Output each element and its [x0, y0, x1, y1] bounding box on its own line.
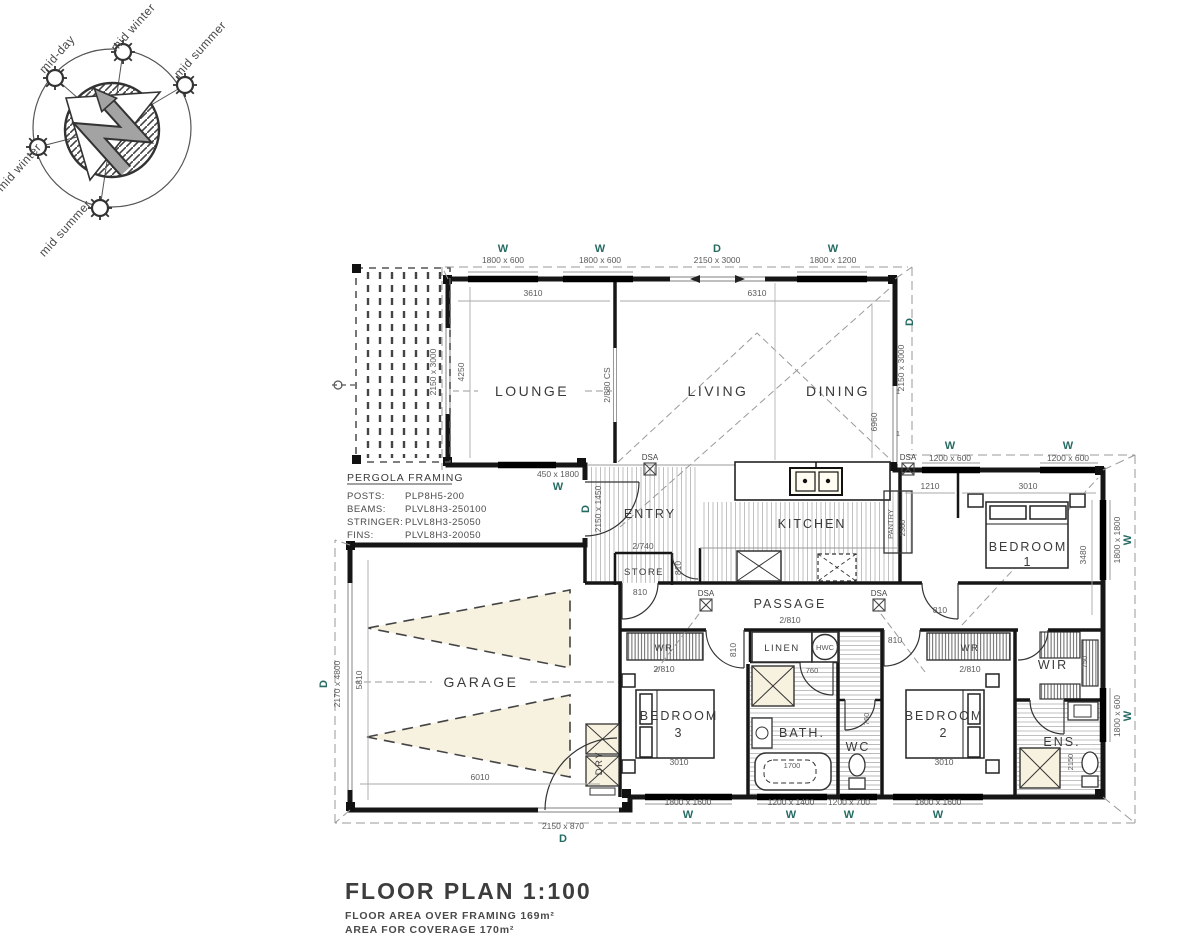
panel-marker: 1 [896, 387, 900, 396]
dim-bed1-depth: 3480 [1078, 545, 1088, 564]
panel-marker: 1 [896, 429, 900, 438]
pergola-note-value: PLVL8H3-25050 [405, 517, 481, 528]
window-tag: W [553, 481, 564, 493]
room-label-dry: DRY [594, 751, 605, 775]
window-size: 1800 x 1200 [810, 255, 857, 265]
dsa-label: DSA [698, 589, 715, 598]
sun-label-midwinter-left: mid winter [0, 140, 44, 194]
window-size: 1800 x 600 [1112, 695, 1122, 737]
dim-tub: 1700 [784, 761, 801, 770]
window-tag: W [595, 243, 606, 255]
room-number-3: 3 [675, 726, 684, 740]
pergola-note-value: PLVL8H3-20050 [405, 530, 481, 541]
drawing-note-1: FLOOR AREA OVER FRAMING 169m² [345, 910, 555, 922]
room-number-2: 2 [940, 726, 949, 740]
room-label-hwc: HWC [816, 643, 834, 652]
north-symbol [65, 82, 160, 180]
room-label-linen: LINEN [764, 643, 799, 654]
dim-bed3-width: 3010 [670, 757, 689, 767]
dim-nook: 1210 [921, 481, 940, 491]
dim-wir: 750 [1080, 656, 1089, 669]
door-size: 2150 x 870 [542, 821, 584, 831]
window-tag: W [498, 243, 509, 255]
door-tag: D [559, 833, 567, 845]
room-label-lounge: LOUNGE [495, 383, 569, 399]
title-block: FLOOR PLAN 1:100 FLOOR AREA OVER FRAMING… [345, 878, 592, 936]
window-size: 1800 x 600 [482, 255, 524, 265]
door-tag: D [713, 243, 721, 255]
dim-bed1-width: 3010 [1019, 481, 1038, 491]
drawing-note-2: AREA FOR COVERAGE 170m² [345, 924, 514, 936]
room-label-entry: ENTRY [624, 507, 676, 521]
room-label-garage: GARAGE [444, 674, 519, 690]
wr-door-size: 2/810 [959, 664, 981, 674]
dim-garage-depth: 5810 [354, 670, 364, 689]
door-size-760: 760 [862, 713, 871, 726]
room-label-bath: BATH. [779, 726, 825, 740]
door-size: 2150 x 3000 [428, 348, 438, 395]
window-tag: W [786, 809, 797, 821]
window-size: 1200 x 600 [1047, 453, 1089, 463]
door-size: 2150 x 1450 [593, 485, 603, 532]
sun-path-diagram: mid-day mid winter mid summer mid winter… [0, 0, 229, 259]
window-size: 1800 x 1600 [915, 797, 962, 807]
room-label-store: STORE [624, 567, 664, 578]
room-label-wc: WC [846, 740, 871, 754]
room-label-wir: WIR [1038, 658, 1068, 672]
room-label-passage: PASSAGE [754, 597, 827, 611]
door-size-810: 810 [673, 561, 683, 575]
window-size: 1200 x 600 [929, 453, 971, 463]
window-tag: W [1063, 440, 1074, 452]
ens-shower [1020, 748, 1060, 788]
dsa-label: DSA [900, 453, 917, 462]
dim-bed2-width: 3010 [935, 757, 954, 767]
window-size: 1200 x 1400 [768, 797, 815, 807]
window-size: 450 x 1800 [537, 469, 579, 479]
window-tag: W [1122, 710, 1134, 721]
floor-plan-drawing: mid-day mid winter mid summer mid winter… [0, 0, 1189, 945]
door-tag: D [580, 505, 592, 513]
room-label-dining: DINING [806, 383, 870, 399]
room-label-kitchen: KITCHEN [778, 517, 847, 531]
cavity-slider-label: 2/880 CS [602, 367, 612, 403]
dim-ens: 2150 [1066, 754, 1075, 771]
door-size-810: 810 [633, 587, 647, 597]
passage-doors-label: 2/810 [779, 615, 801, 625]
pergola-note-label: STRINGER: [347, 517, 403, 528]
pergola-note-value: PLP8H5-200 [405, 491, 464, 502]
sun-label-midsummer-right: mid summer [171, 18, 229, 80]
bath-vanity [752, 718, 772, 748]
dim-pantry-depth: 2360 [898, 520, 907, 537]
pergola-note-title: PERGOLA FRAMING [347, 472, 464, 484]
door-size-760: 760 [806, 666, 819, 675]
room-number-1: 1 [1024, 555, 1033, 569]
room-label-pantry: PANTRY [886, 509, 895, 539]
room-label-bedroom3: BEDROOM [640, 709, 719, 723]
room-label-ens: ENS. [1043, 735, 1080, 749]
window-size: 1200 x 700 [828, 797, 870, 807]
dim-lounge-width: 3610 [524, 288, 543, 298]
pergola-note-value: PLVL8H3-250100 [405, 504, 487, 515]
dim-lounge-depth: 4250 [456, 362, 466, 381]
window-tag: W [1122, 534, 1134, 545]
room-label-living: LIVING [688, 383, 749, 399]
window-tag: W [933, 809, 944, 821]
dim-garage-width: 6010 [471, 772, 490, 782]
window-size: 1800 x 600 [579, 255, 621, 265]
dsa-label: DSA [642, 453, 659, 462]
bathtub [755, 753, 831, 790]
store-door-size: 2/740 [632, 541, 654, 551]
dim-dining-depth: 6960 [869, 412, 879, 431]
floor-plan-sheet: mid-day mid winter mid summer mid winter… [0, 0, 1189, 945]
door-size: 2150 x 3000 [896, 344, 906, 391]
dsa-label: DSA [871, 589, 888, 598]
dim-living-width: 6310 [748, 288, 767, 298]
door-size-810: 810 [933, 605, 947, 615]
door-size-810: 810 [888, 635, 902, 645]
pergola-note-label: BEAMS: [347, 504, 386, 515]
pergola-note-label: POSTS: [347, 491, 385, 502]
room-label-wr3: WR [655, 643, 674, 654]
door-tag: D [318, 680, 330, 688]
door-size-810: 810 [728, 643, 738, 657]
door-size: 2170 x 4800 [332, 660, 342, 707]
pergola-note-label: FINS: [347, 530, 374, 541]
door-size: 2150 x 3000 [694, 255, 741, 265]
ens-toilet-icon [1082, 752, 1098, 787]
pergola-framing-note: PERGOLA FRAMING POSTS: PLP8H5-200 BEAMS:… [347, 472, 487, 541]
sun-label-midsummer-bottom: mid summer [36, 197, 94, 259]
door-tag: D [904, 318, 916, 326]
room-label-wr2: WR [961, 643, 980, 654]
window-tag: W [844, 809, 855, 821]
window-size: 1800 x 1800 [1112, 516, 1122, 563]
window-tag: W [945, 440, 956, 452]
wc-toilet-icon [849, 754, 865, 789]
window-tag: W [683, 809, 694, 821]
drawing-title: FLOOR PLAN 1:100 [345, 878, 592, 904]
room-label-bedroom2: BEDROOM [905, 709, 984, 723]
bath-shower [752, 666, 794, 706]
window-size: 1800 x 1600 [665, 797, 712, 807]
wr-door-size: 2/810 [653, 664, 675, 674]
window-tag: W [828, 243, 839, 255]
room-label-bedroom1: BEDROOM [989, 540, 1068, 554]
sun-label-midwinter-top: mid winter [108, 0, 158, 54]
